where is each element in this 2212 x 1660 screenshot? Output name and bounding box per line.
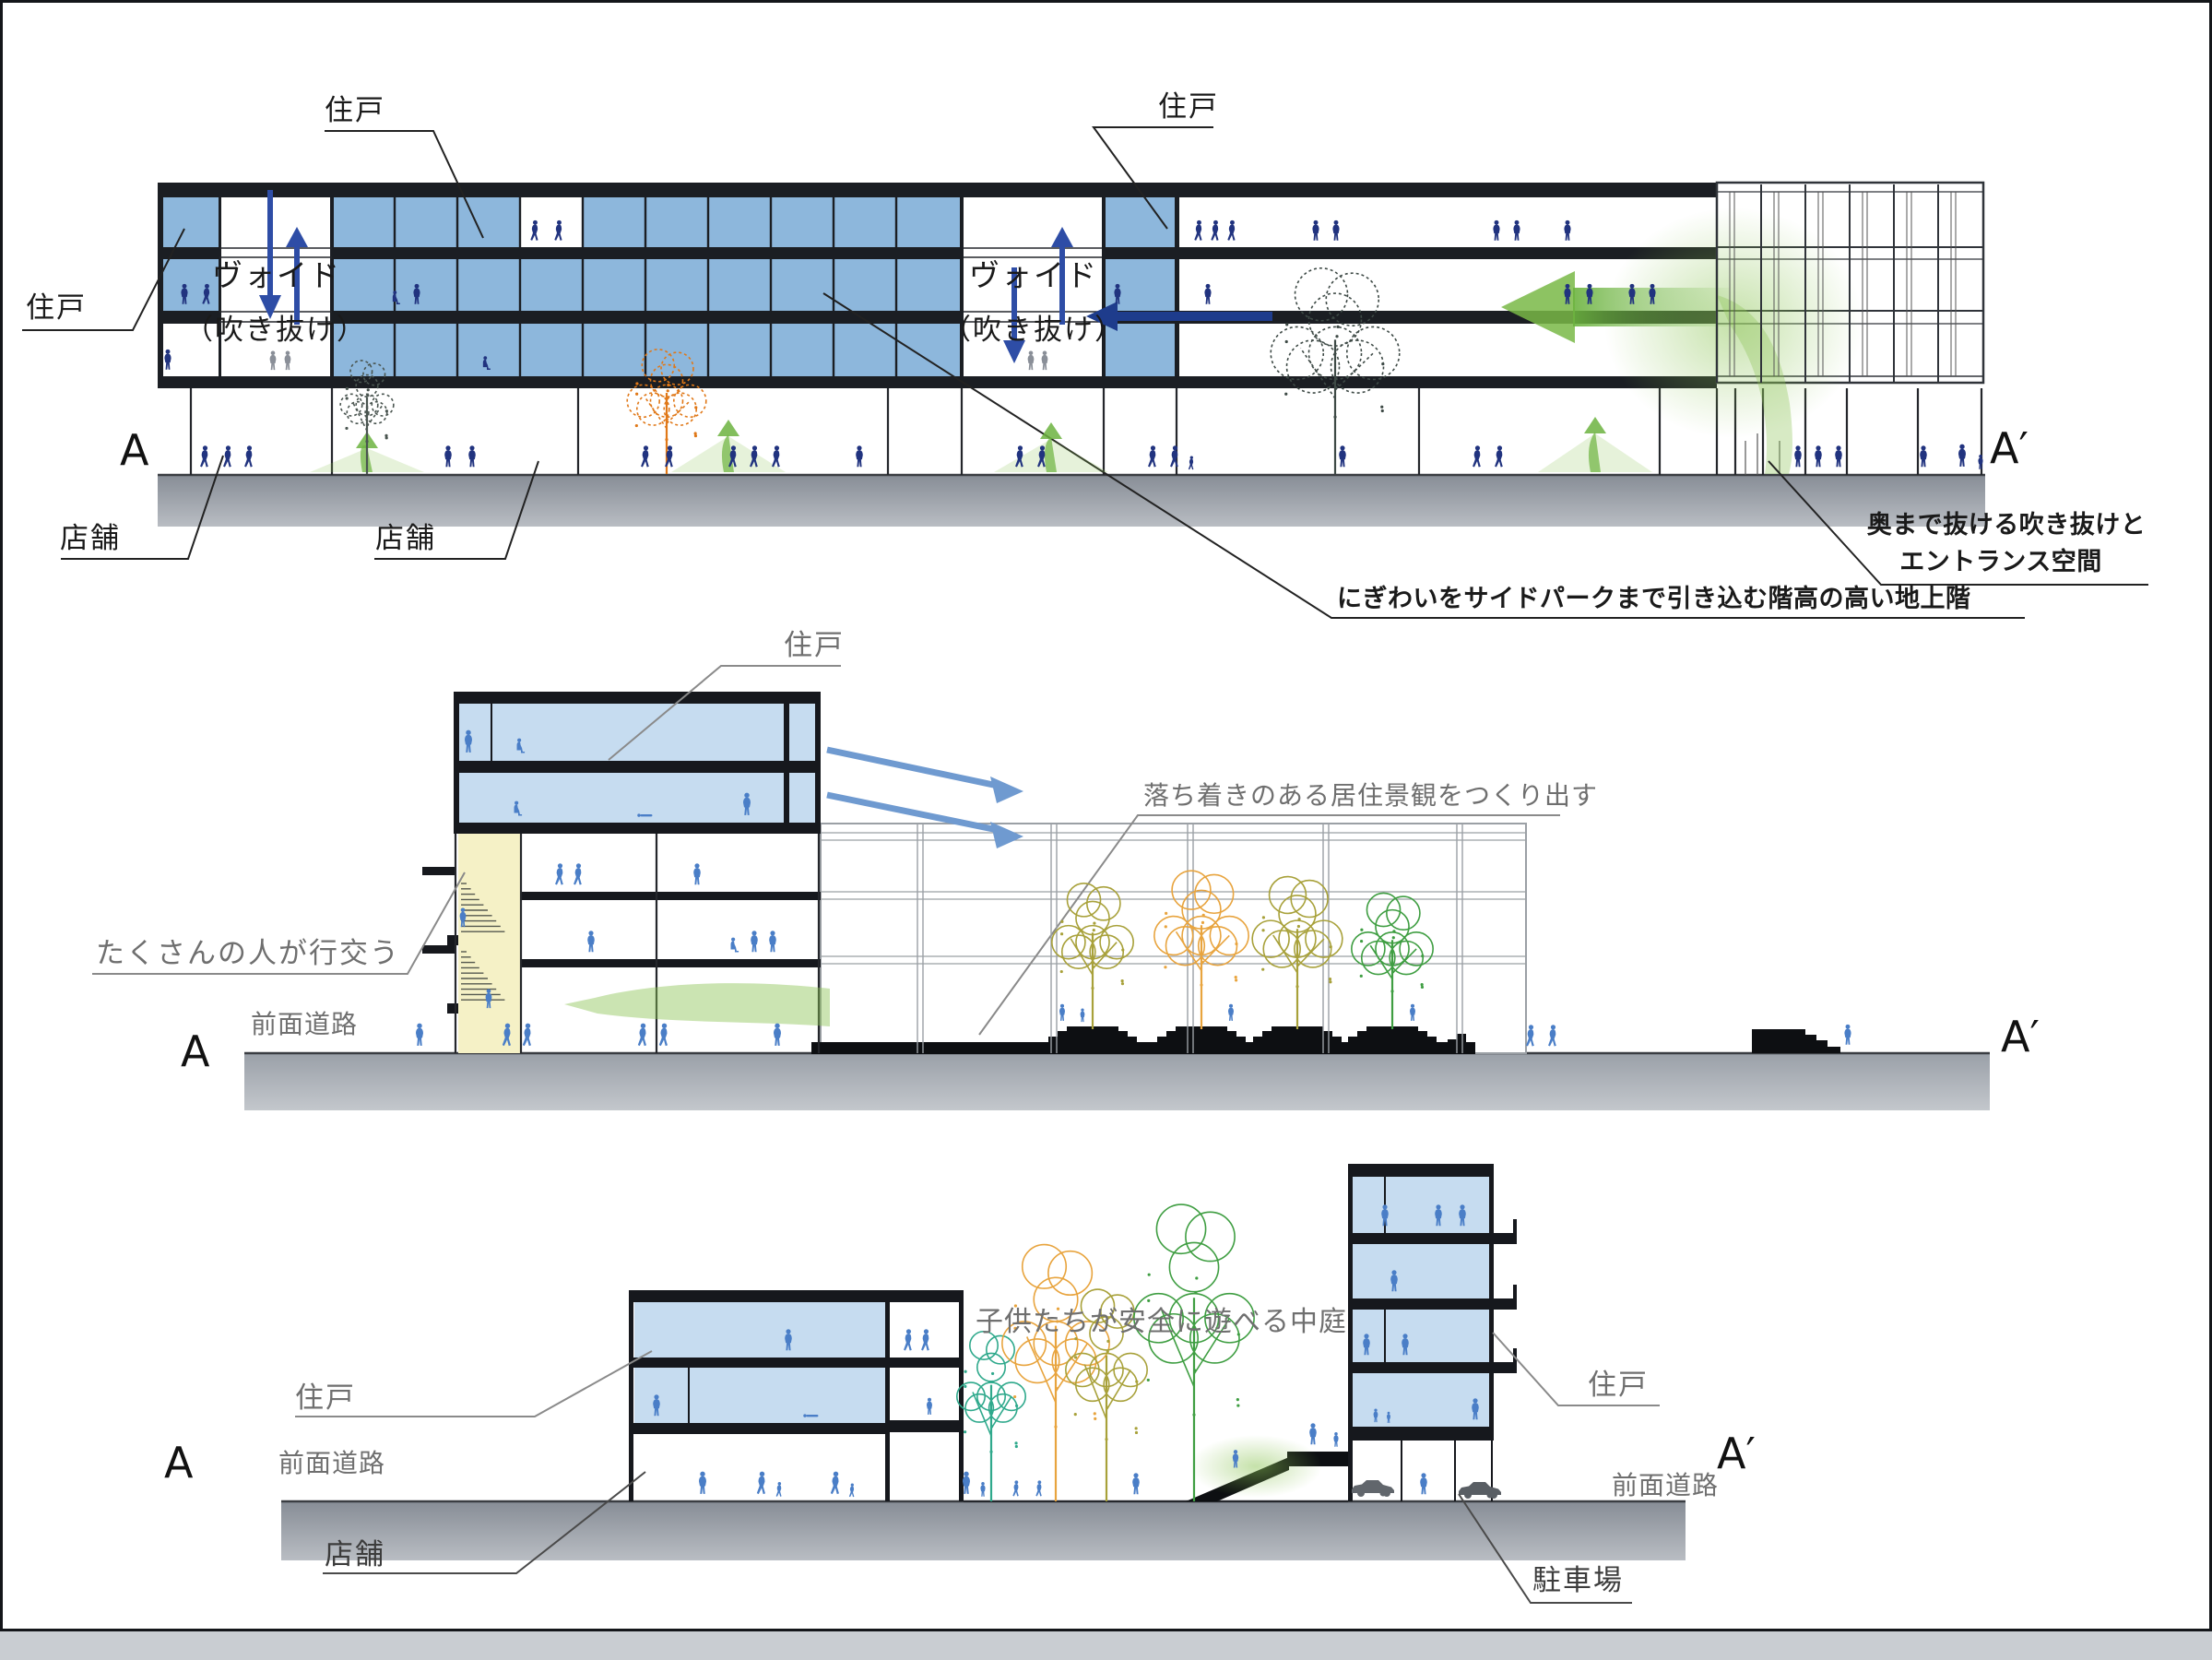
person-standing-icon xyxy=(1420,1473,1427,1494)
person-walking-icon xyxy=(1211,220,1218,241)
annotation-ground-floor: にぎわいをサイドパークまで引き込む階高の高い地上階 xyxy=(1337,587,1971,612)
person-standing-icon xyxy=(963,1472,970,1494)
person-walking-icon xyxy=(776,1482,782,1497)
middle-section xyxy=(244,692,1990,1110)
label-void1-line2: （吹き抜け） xyxy=(184,315,367,346)
label-unit-bottom-right: 住戸 xyxy=(1588,1370,1649,1401)
person-walking-icon xyxy=(1526,1025,1534,1046)
person-walking-icon xyxy=(1035,1480,1041,1496)
person-walking-icon xyxy=(638,1024,646,1047)
person-standing-icon xyxy=(1958,445,1966,467)
label-unit-left: 住戸 xyxy=(26,293,87,324)
person-standing-icon xyxy=(1333,1432,1338,1447)
label-unit-middle: 住戸 xyxy=(784,631,845,661)
person-walking-icon xyxy=(523,1024,531,1047)
label-unit-right: 住戸 xyxy=(1158,92,1219,123)
section-marker-a-bottom: A xyxy=(164,1441,193,1485)
bottom-road xyxy=(281,1501,1686,1560)
person-standing-icon xyxy=(285,350,291,370)
person-standing-icon xyxy=(1920,445,1927,467)
label-void1-line1: ヴォイド xyxy=(212,260,341,292)
person-standing-icon xyxy=(1564,220,1570,241)
person-walking-icon xyxy=(1194,220,1201,241)
annotation-courtyard: 子供たちが安全に遊べる中庭 xyxy=(976,1308,1347,1337)
section-marker-a2-bottom: A′ xyxy=(1717,1431,1756,1476)
person-standing-icon xyxy=(270,350,277,370)
person-walking-icon xyxy=(659,1024,668,1047)
person-standing-icon xyxy=(1132,1473,1140,1494)
middle-elevation-grid xyxy=(821,824,1526,1053)
person-walking-icon xyxy=(1473,445,1481,467)
person-walking-icon xyxy=(1548,1025,1556,1046)
person-walking-icon xyxy=(200,445,208,467)
label-unit-bottom-left: 住戸 xyxy=(295,1383,356,1414)
person-standing-icon xyxy=(587,931,595,952)
person-walking-icon xyxy=(1227,220,1235,241)
person-walking-icon xyxy=(555,863,563,884)
person-standing-icon xyxy=(1312,220,1319,241)
top-section xyxy=(158,183,1985,527)
parked-car xyxy=(1459,1482,1501,1499)
section-marker-a-top: A xyxy=(120,428,148,472)
person-walking-icon xyxy=(1170,445,1178,467)
person-standing-icon xyxy=(416,1024,423,1046)
person-walking-icon xyxy=(223,445,231,467)
bottom-right-building xyxy=(1348,1164,1517,1501)
label-unit-top: 住戸 xyxy=(325,96,385,126)
person-walking-icon xyxy=(1012,1480,1018,1496)
bottom-left-building xyxy=(629,1290,964,1501)
label-void2-line2: （吹き抜け） xyxy=(942,315,1125,346)
person-sitting-icon xyxy=(731,938,739,953)
person-standing-icon xyxy=(927,1398,932,1415)
person-walking-icon xyxy=(904,1329,912,1350)
person-standing-icon xyxy=(1844,1025,1851,1045)
person-standing-icon xyxy=(774,1024,781,1046)
person-walking-icon xyxy=(244,445,253,467)
green-play-splash xyxy=(1189,1435,1322,1498)
section-marker-a2-top: A′ xyxy=(1990,426,2029,470)
label-front-road-middle: 前面道路 xyxy=(251,1011,358,1037)
architectural-section-diagram: 住戸 住戸 住戸 ヴォイド （吹き抜け） ヴォイド （吹き抜け） 店舗 店舗 A… xyxy=(0,0,2212,1660)
person-walking-icon xyxy=(772,445,780,467)
person-standing-icon xyxy=(1339,445,1346,467)
person-standing-icon xyxy=(1332,220,1339,241)
label-shop-center: 店舗 xyxy=(375,524,436,554)
person-standing-icon xyxy=(1042,350,1048,370)
person-walking-icon xyxy=(1495,445,1503,467)
person-standing-icon xyxy=(1028,350,1035,370)
person-standing-icon xyxy=(693,863,701,884)
person-standing-icon xyxy=(444,445,452,467)
person-walking-icon xyxy=(574,863,582,884)
bottom-section xyxy=(281,1164,1686,1560)
person-walking-icon xyxy=(1189,456,1194,470)
label-void2-line1: ヴォイド xyxy=(969,260,1098,292)
person-standing-icon xyxy=(1493,220,1499,241)
label-front-road-bottom-right: 前面道路 xyxy=(1612,1472,1719,1499)
person-standing-icon xyxy=(769,931,776,952)
person-standing-icon xyxy=(751,931,758,952)
person-standing-icon xyxy=(980,1482,985,1497)
person-standing-icon xyxy=(468,445,476,467)
person-standing-icon xyxy=(856,445,863,467)
person-standing-icon xyxy=(1204,284,1211,304)
person-walking-icon xyxy=(641,445,649,467)
label-shop-left: 店舗 xyxy=(60,524,121,554)
top-road xyxy=(158,475,1985,527)
green-flow-swoosh xyxy=(564,983,830,1026)
person-standing-icon xyxy=(1794,445,1802,467)
person-walking-icon xyxy=(831,1472,839,1495)
person-walking-icon xyxy=(757,1472,765,1495)
annotation-entrance-2: エントランス空間 xyxy=(1899,550,2101,575)
section-marker-a-middle: A xyxy=(181,1029,209,1073)
annotation-crowd: たくさんの人が行交う xyxy=(96,939,400,969)
person-walking-icon xyxy=(921,1329,929,1350)
person-walking-icon xyxy=(849,1484,855,1498)
person-standing-icon xyxy=(699,1472,706,1494)
label-shop-bottom: 店舗 xyxy=(325,1540,385,1571)
annotation-entrance-1: 奥まで抜ける吹き抜けと xyxy=(1867,513,2147,539)
person-standing-icon xyxy=(164,350,171,370)
annotation-calm: 落ち着きのある居住景観をつくり出す xyxy=(1143,782,1598,809)
parked-car xyxy=(1352,1480,1394,1497)
middle-road xyxy=(244,1053,1990,1110)
label-parking: 駐車場 xyxy=(1532,1566,1624,1596)
person-standing-icon xyxy=(1815,445,1822,467)
person-walking-icon xyxy=(1148,445,1156,467)
person-standing-icon xyxy=(1835,445,1842,467)
person-standing-icon xyxy=(1513,220,1520,241)
stairwell xyxy=(458,834,521,1053)
section-marker-a2-middle: A′ xyxy=(2001,1014,2040,1059)
label-front-road-bottom-left: 前面道路 xyxy=(278,1450,385,1476)
person-standing-icon xyxy=(1309,1423,1317,1444)
